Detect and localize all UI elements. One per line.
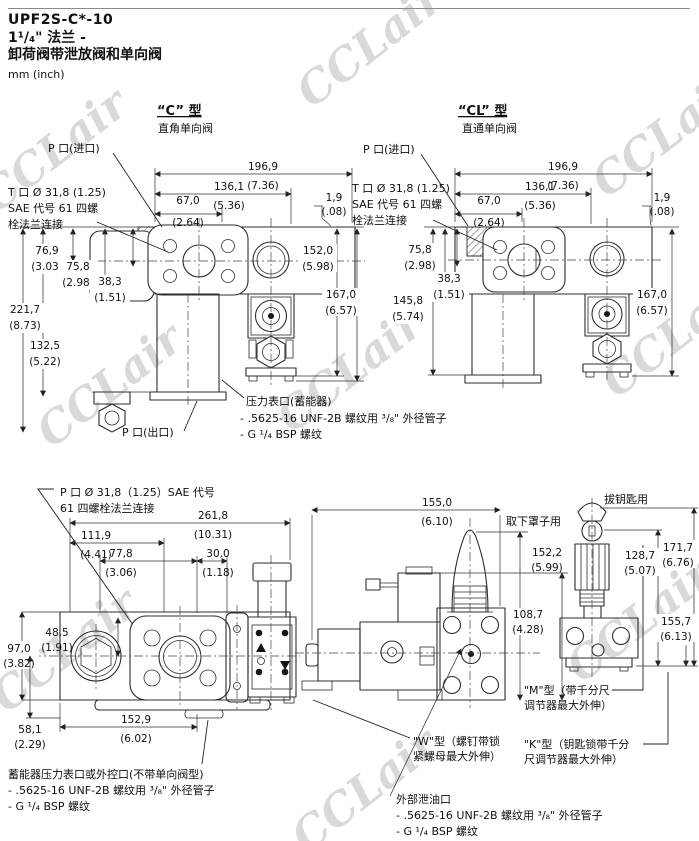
dim-label: 97,0: [7, 643, 30, 655]
port-p-flange-note: P 口 Ø 31,8（1.25）SAE 代号: [60, 486, 215, 499]
dim-label: 58,1: [18, 724, 41, 736]
flow-arrow-up: [256, 643, 266, 652]
dim-label: 152,0: [303, 245, 333, 257]
k-type-note: 尺调节器最大外伸）: [524, 752, 623, 766]
foot: [249, 376, 257, 381]
dim-label: 221,7: [10, 304, 40, 316]
k-body: [560, 618, 638, 658]
dim-label: 152,9: [121, 714, 151, 726]
gauge-port-note: - .5625-16 UNF-2B 螺纹用 ³/₈" 外径管子: [240, 411, 447, 425]
dim-label: (2.29): [14, 739, 46, 751]
flow-arrow-down: [280, 661, 290, 670]
w-type-note: 紧螺母最大外伸）: [413, 749, 501, 763]
dim-label: (4.41): [80, 549, 112, 561]
acc-gauge-note: 蓄能器压力表口或外控口(不带单向阀型): [8, 767, 204, 781]
dim-label: (1.51): [94, 292, 126, 304]
dim-label: (6.76): [662, 557, 694, 569]
port-p-flange-note: 61 四螺栓法兰连接: [60, 501, 155, 515]
external-drain-note: 外部泄油口: [396, 792, 451, 806]
foot: [285, 376, 293, 381]
dim-label: 167,0: [326, 289, 356, 301]
view-subtitle: 直通单向阀: [462, 121, 517, 135]
foot: [620, 372, 628, 377]
dim-label: 38,3: [98, 276, 121, 288]
dim-label: (3.06): [105, 567, 137, 579]
bolt-hole: [613, 628, 630, 645]
dim-label: (5.36): [524, 200, 556, 212]
dim-label: 261,8: [198, 510, 228, 522]
pilot-valve-block: [248, 617, 296, 697]
adapter: [584, 606, 601, 618]
port-p-inlet-label: P 口(进口): [48, 142, 100, 155]
dim-label: (7.36): [247, 180, 279, 192]
port-p-inlet-label: P 口(进口): [363, 143, 415, 156]
external-drain-note: - .5625-16 UNF-2B 螺纹用 ³/₈" 外径管子: [396, 808, 603, 822]
port-t-label: SAE 代号 61 四螺: [8, 202, 98, 215]
dim-label: 76,9: [35, 245, 58, 257]
side-tab: [249, 340, 256, 358]
dim-label: 67,0: [477, 195, 500, 207]
view-header: “C” 型: [157, 103, 202, 119]
dim-label: (6.10): [421, 516, 453, 528]
bolt-hole: [482, 617, 499, 634]
dim-label: 67,0: [176, 195, 199, 207]
technical-drawing: “C” 型 直角单向阀: [0, 0, 699, 841]
front-view: P 口 Ø 31,8（1.25）SAE 代号 61 四螺栓法兰连接: [1, 486, 300, 813]
dim-label: (1.91): [41, 642, 73, 654]
dim-label: (6.57): [636, 305, 668, 317]
port-t-label: T 口 Ø 31,8 (1.25): [351, 182, 450, 195]
dim-label: 111,9: [81, 530, 111, 542]
dim-label: (2.98): [62, 277, 94, 289]
dim-label: 155,7: [661, 616, 691, 628]
bracket: [302, 681, 332, 690]
dim-label: (2.64): [172, 217, 204, 229]
dim-label: 30,0: [206, 548, 229, 560]
k-type-view: 拔钥匙用: [560, 492, 698, 678]
left-solenoid: [318, 629, 360, 681]
dim-label: (5.98): [302, 261, 334, 273]
dim-label: (5.74): [392, 311, 424, 323]
side-tab: [286, 340, 293, 358]
k-type-note: "K"型（钥匙锁带千分: [524, 737, 629, 751]
port-t-label: 栓法兰连接: [352, 213, 407, 227]
dim-label: 155,0: [422, 497, 452, 509]
base: [566, 658, 632, 667]
dim-label: (6.13): [660, 631, 692, 643]
dim-label: (2.64): [473, 217, 505, 229]
drain-port-center: [468, 651, 474, 657]
dim-label: 48,5: [45, 627, 68, 639]
port-t-label: 栓法兰连接: [8, 217, 63, 231]
dim-label: 75,8: [408, 244, 431, 256]
dim-label: 136,1: [214, 181, 244, 193]
dim-label: 171,7: [663, 542, 693, 554]
dim-label: (5.99): [531, 562, 563, 574]
w-type-note: "W"型（螺钉带锁: [413, 734, 500, 748]
sae-flange: [148, 225, 248, 295]
m-type-note: "M"型（带千分尺: [524, 683, 610, 697]
dim-label: 145,8: [393, 295, 423, 307]
foot: [620, 667, 628, 671]
dim-label: 108,7: [513, 609, 543, 621]
dim-label: (5.07): [624, 565, 656, 577]
dim-label: 196,9: [548, 161, 578, 173]
dim-label: 196,9: [248, 161, 278, 173]
foot: [570, 667, 578, 671]
pull-key-note: 拔钥匙用: [604, 492, 648, 506]
acc-gauge-note: - .5625-16 UNF-2B 螺纹用 ³/₈" 外径管子: [8, 783, 215, 797]
dim-label: (1.51): [433, 289, 465, 301]
dim-label: 128,7: [625, 550, 655, 562]
gauge-boss: [185, 710, 223, 718]
symbol-port: [258, 658, 265, 665]
remove-cover-note: 取下罩子用: [506, 515, 561, 528]
view-subtitle: 直角单向阀: [158, 121, 213, 135]
port-t-label: SAE 代号 61 四螺: [352, 198, 442, 211]
dim-label: 152,2: [532, 547, 562, 559]
port: [592, 644, 604, 656]
dim-label: 167,0: [637, 289, 667, 301]
view-header: “CL” 型: [458, 103, 507, 119]
bolt-hole: [482, 677, 499, 694]
dim-label: (6.02): [120, 733, 152, 745]
gauge-port-note: - G ¹/₄ BSP 螺纹: [240, 427, 322, 441]
dim-label: (.08): [322, 206, 347, 218]
port-boss: [381, 641, 403, 663]
outlet-stub: [94, 392, 130, 404]
port-boss-inner: [388, 648, 397, 657]
dim-label: 1,9: [654, 192, 671, 204]
dim-label: (5.36): [213, 200, 245, 212]
dim-label: (4.28): [512, 624, 544, 636]
dim-label: 132,5: [30, 340, 60, 352]
dim-label: (8.73): [9, 320, 41, 332]
dim-label: (1.18): [202, 567, 234, 579]
dim-label: 136,1: [525, 181, 555, 193]
gauge-port-note: 压力表口(蓄能器): [246, 394, 332, 408]
bolt-hole: [567, 628, 584, 645]
adjuster-end-cap: [306, 644, 318, 666]
dim-label: (5.22): [29, 356, 61, 368]
lower-body: [157, 294, 219, 392]
datasheet-page: CCLair CCLair CCLair CCLair CCLair CCLai…: [0, 0, 699, 841]
dim-label: 75,8: [66, 261, 89, 273]
bolt-hole: [444, 617, 461, 634]
hex-plug-bore: [105, 411, 119, 425]
base-lip: [398, 690, 442, 700]
foot: [586, 372, 594, 377]
dim-label: 38,3: [437, 273, 460, 285]
acc-gauge-note: - G ¹/₄ BSP 螺纹: [8, 799, 90, 813]
m-type-note: 调节器最大外伸）: [524, 698, 612, 712]
dim-label: 1,9: [326, 192, 343, 204]
port-t-label: T 口 Ø 31,8 (1.25): [7, 186, 106, 199]
dim-label: (.08): [650, 206, 675, 218]
drain-fitting: [366, 579, 380, 590]
drawing-cl-view: “CL” 型 直通单向阀: [351, 103, 679, 388]
port-p-outlet-label: P 口(出口): [122, 425, 174, 439]
dim-label: 77,8: [109, 548, 132, 560]
external-drain-note: - G ¹/₄ BSP 螺纹: [396, 824, 478, 838]
solenoid-cap: [253, 563, 291, 581]
pilot-head: [398, 573, 440, 622]
dim-label: (10.31): [194, 529, 232, 541]
dim-label: (6.57): [325, 305, 357, 317]
dim-label: (2.98): [404, 260, 436, 272]
bolt-hole: [444, 677, 461, 694]
